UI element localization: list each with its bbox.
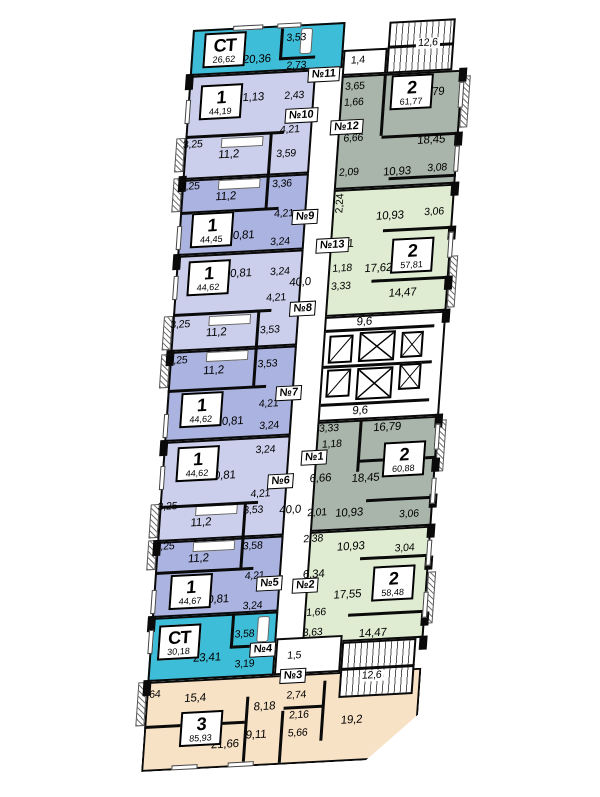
apartment-type: 1 xyxy=(197,215,228,235)
apartment-type: 1 xyxy=(206,87,237,107)
unit-number: №13 xyxy=(315,237,349,254)
room-area-label: 3,25 xyxy=(157,501,177,513)
apartment-type: 1 xyxy=(186,395,217,415)
room-area-label: 2,74 xyxy=(286,690,306,702)
corridor-area-label: 40,0 xyxy=(279,505,301,518)
room-area-label: 11,2 xyxy=(215,191,237,204)
room-area-label: ,64 xyxy=(146,689,161,700)
room-area-label: 3,33 xyxy=(319,423,339,435)
room-area-label: 19,2 xyxy=(340,715,362,728)
floor-plan-page: { "plan": { "corridor_area": "40,0", "li… xyxy=(0,0,600,797)
room-area-label: 14,47 xyxy=(388,287,417,300)
room-area-label: 10,93 xyxy=(383,166,412,179)
lift-hall-label: 9,6 xyxy=(356,317,372,329)
elevator-shaft-icon xyxy=(328,334,354,363)
room-area-label: 3,25 xyxy=(170,319,190,331)
room-area-label: 3,53 xyxy=(260,324,280,336)
room-area-label: 3,24 xyxy=(255,444,275,456)
room-area-label: 6,66 xyxy=(309,473,331,486)
room-area-label: 2,01 xyxy=(307,507,327,519)
apartment-type: СТ xyxy=(209,35,240,55)
room-area-label: 17,55 xyxy=(333,589,362,602)
unit-number: №2 xyxy=(292,577,320,593)
apartment-area: 44,62 xyxy=(182,468,213,479)
room-area-label: 1,18 xyxy=(332,263,352,275)
room-area-label: 3,24 xyxy=(270,266,290,278)
apartment-area: 44,19 xyxy=(205,106,236,117)
room-area-label: 3,33 xyxy=(331,281,351,293)
apartment-area: 58,48 xyxy=(377,588,408,599)
unit-number: №4 xyxy=(249,641,277,657)
apartment-badge: 258,48 xyxy=(371,564,416,601)
unit-number: №7 xyxy=(275,385,303,401)
room-area-label: 3,25 xyxy=(167,355,187,367)
unit-number: №6 xyxy=(267,473,295,489)
corridor-area-label: 40,0 xyxy=(289,277,311,290)
room-area-label: 20,36 xyxy=(242,54,271,67)
unit-number: №10 xyxy=(284,107,318,124)
apartment-area: 57,81 xyxy=(396,260,427,271)
apartment-area: 85,93 xyxy=(185,733,216,744)
room-area-label: 10,93 xyxy=(375,210,404,223)
apartment-type: 2 xyxy=(378,569,409,589)
room-area-label: 10,93 xyxy=(335,507,364,520)
room-area-label: 3,25 xyxy=(180,181,200,193)
apartment-area: 61,77 xyxy=(396,97,427,108)
room-area-label: 16,79 xyxy=(373,422,402,435)
apartment-area: 44,62 xyxy=(193,282,224,293)
bathtub xyxy=(256,616,270,643)
apartment-type: 1 xyxy=(182,449,213,469)
room-area-label: 10,93 xyxy=(336,541,365,554)
apartment-badge: 144,19 xyxy=(199,83,244,120)
room-area-label: 18,45 xyxy=(417,134,446,147)
unit-number: №11 xyxy=(307,66,340,83)
elevator-shaft-icon xyxy=(355,366,393,400)
room-area-label: 11,2 xyxy=(190,517,212,530)
lift-hall-label: 9,6 xyxy=(352,405,368,417)
room-area-label: 1,66 xyxy=(344,97,364,109)
unit-number: №9 xyxy=(291,209,319,225)
elevator-shaft-icon xyxy=(400,331,424,358)
apartment-badge: 260,88 xyxy=(382,440,427,477)
room-area-label: 3,24 xyxy=(242,600,262,612)
vestibule-area-label: 1,5 xyxy=(287,650,302,661)
room-area-label: 2,73 xyxy=(286,60,306,72)
room-area-label: 2,43 xyxy=(284,90,304,102)
room-area-label: 3,36 xyxy=(272,178,292,190)
apartment-type: 3 xyxy=(186,714,217,734)
apartment-area: 26,62 xyxy=(209,54,240,65)
room-area-label: 3,63 xyxy=(302,627,322,639)
room-area-label: 3,24 xyxy=(259,420,279,432)
apartment-type: 1 xyxy=(175,577,206,597)
room-area-label: 3,08 xyxy=(427,162,447,174)
apartment-type: 2 xyxy=(397,241,428,261)
room-area-label: 4,21 xyxy=(280,124,300,136)
apartment-badge: 144,62 xyxy=(186,259,231,296)
room-area-label: 3,24 xyxy=(270,236,290,248)
unit-number: №12 xyxy=(330,119,364,136)
room-area-label: 3,53 xyxy=(286,32,306,44)
apartment-badge: 144,67 xyxy=(168,573,213,610)
room-area-label: 2,24 xyxy=(334,193,346,213)
apartment-badge: СТ26,62 xyxy=(202,31,247,68)
room-area-label: 5,66 xyxy=(287,727,307,739)
room-area-label: 2,16 xyxy=(289,709,309,721)
room-area-label: 17,62 xyxy=(364,263,393,276)
apartment-type: 2 xyxy=(389,445,420,465)
stairs-area-label: 12,6 xyxy=(416,37,440,49)
room-area-label: 3,53 xyxy=(243,505,263,517)
room-area-label: 9,11 xyxy=(245,730,267,743)
apartment-type: 1 xyxy=(193,263,224,283)
room-area-label: 11,2 xyxy=(205,327,227,340)
room-area-label: 2,38 xyxy=(303,533,323,545)
room-area-label: 3,06 xyxy=(399,508,419,520)
room-area-label: 4,21 xyxy=(266,292,286,304)
building-floor-plan: СТ26,62 144,19 144,45 144,62 144,62 144,… xyxy=(141,16,467,772)
elevator-shaft-icon xyxy=(325,368,351,397)
room-area-label: 15,4 xyxy=(184,693,206,706)
apartment-badge: 261,77 xyxy=(389,73,434,110)
apartment-area: 44,45 xyxy=(196,234,227,245)
unit-number: №8 xyxy=(289,301,317,317)
stairs-area-label: 12,6 xyxy=(359,670,383,682)
apartment-badge: 385,93 xyxy=(179,710,224,747)
room-area-label: 8,18 xyxy=(253,701,275,714)
room-area-label: 11,2 xyxy=(218,149,240,162)
room-area-label: 14,47 xyxy=(358,628,387,641)
room-area-label: 3,04 xyxy=(394,542,414,554)
room-area-label: 3,53 xyxy=(257,358,277,370)
apartment-area: 44,67 xyxy=(175,596,206,607)
room-area-label: 11,2 xyxy=(203,365,225,378)
apartment-type: СТ xyxy=(164,628,195,648)
room-area-label: 3,58 xyxy=(234,629,254,641)
elevator-shaft-icon xyxy=(358,330,396,362)
apartment-area: 30,18 xyxy=(163,647,194,658)
apartment-badge: 144,62 xyxy=(175,445,220,482)
apartment-badge: 257,81 xyxy=(390,237,435,274)
room-area-label: 3,25 xyxy=(183,139,203,151)
room-area-label: 3,19 xyxy=(234,658,254,670)
room-area-label: 3,65 xyxy=(345,81,365,93)
room-area-label: 3,58 xyxy=(242,540,262,552)
elevator-shaft-icon xyxy=(398,363,422,390)
room-area-label: 1,18 xyxy=(322,439,342,451)
room-area-label: 3,59 xyxy=(276,148,296,160)
apartment-badge: 144,45 xyxy=(190,211,235,248)
room-area-label: 1,66 xyxy=(306,607,326,619)
apartment-badge: 144,62 xyxy=(179,391,224,428)
apartment-area: 44,62 xyxy=(185,414,216,425)
apartment-type: 2 xyxy=(396,78,427,98)
room-area-label: 3,25 xyxy=(154,541,174,553)
apartment-badge: СТ30,18 xyxy=(157,623,202,660)
room-area-label: 11,2 xyxy=(188,553,210,566)
apartment-area: 60,88 xyxy=(388,464,419,475)
unit-number: №5 xyxy=(256,575,284,591)
unit-number: №1 xyxy=(301,449,329,465)
unit-number: №3 xyxy=(279,668,307,684)
vestibule-area-label: 1,4 xyxy=(350,55,365,66)
room-area-label: 2,09 xyxy=(339,167,359,179)
room-area-label: 18,45 xyxy=(351,473,380,486)
room-area-label: 4,21 xyxy=(250,488,270,500)
room-area-label: 3,06 xyxy=(424,206,444,218)
